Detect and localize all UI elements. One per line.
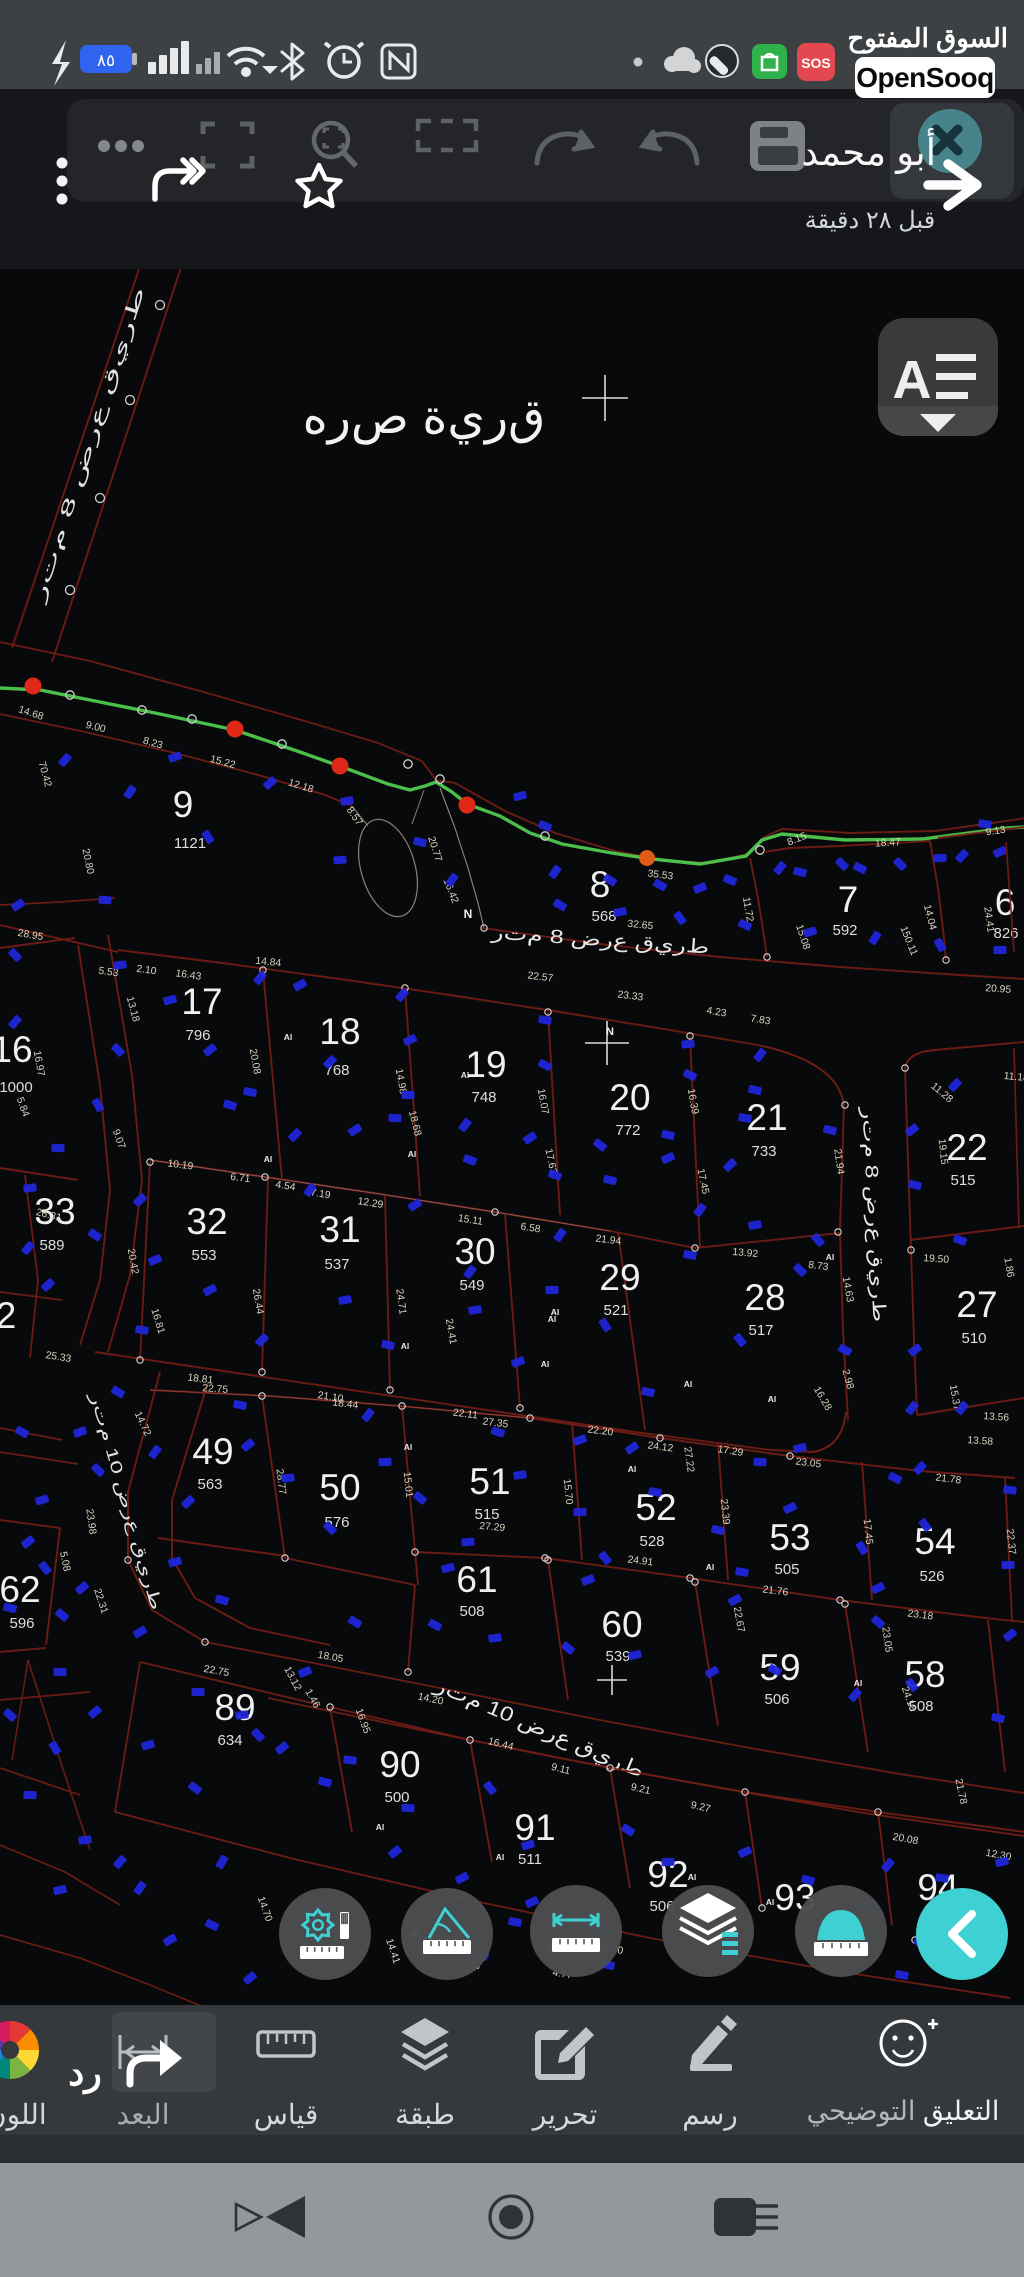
svg-text:28: 28 — [744, 1277, 785, 1318]
svg-text:Al: Al — [684, 1379, 693, 1389]
svg-text:SOS: SOS — [801, 55, 831, 71]
svg-text:510: 510 — [961, 1330, 986, 1347]
svg-text:Al: Al — [768, 1394, 777, 1404]
svg-text:2: 2 — [0, 1295, 16, 1336]
svg-text:Al: Al — [706, 1562, 715, 1572]
svg-text:8: 8 — [590, 864, 611, 905]
svg-text:27: 27 — [956, 1284, 997, 1325]
svg-text:Al: Al — [628, 1464, 637, 1474]
svg-text:طبقة: طبقة — [395, 2099, 455, 2130]
svg-text:20.95: 20.95 — [985, 983, 1012, 996]
svg-text:A: A — [893, 350, 932, 410]
svg-text:54: 54 — [914, 1521, 955, 1562]
svg-text:589: 589 — [39, 1237, 64, 1254]
svg-text:89: 89 — [214, 1687, 255, 1728]
svg-text:22.75: 22.75 — [202, 1383, 229, 1396]
svg-text:16: 16 — [0, 1029, 33, 1070]
svg-text:553: 553 — [191, 1247, 216, 1264]
svg-text:796: 796 — [185, 1027, 210, 1044]
svg-text:Al: Al — [826, 1252, 835, 1262]
svg-text:596: 596 — [9, 1615, 34, 1632]
svg-text:قبل ٢٨ دقيقة: قبل ٢٨ دقيقة — [805, 207, 935, 234]
svg-text:1121: 1121 — [174, 835, 206, 852]
svg-text:61: 61 — [456, 1559, 497, 1600]
svg-text:51: 51 — [469, 1461, 510, 1502]
svg-text:Al: Al — [376, 1822, 385, 1832]
svg-text:7: 7 — [838, 879, 859, 920]
svg-text:13.92: 13.92 — [732, 1247, 759, 1260]
svg-text:508: 508 — [459, 1603, 484, 1620]
svg-text:٨٥: ٨٥ — [97, 51, 115, 70]
svg-text:526: 526 — [919, 1568, 944, 1585]
svg-text:537: 537 — [324, 1256, 349, 1273]
svg-text:515: 515 — [474, 1506, 499, 1523]
svg-text:748: 748 — [471, 1089, 496, 1106]
svg-text:539: 539 — [605, 1648, 630, 1665]
svg-text:رسم: رسم — [682, 2099, 738, 2131]
svg-text:568: 568 — [591, 908, 616, 925]
svg-text:27.29: 27.29 — [479, 1521, 506, 1534]
svg-text:Al: Al — [548, 1314, 557, 1324]
svg-text:772: 772 — [615, 1122, 640, 1139]
svg-text:تحرير: تحرير — [531, 2099, 598, 2131]
svg-text:634: 634 — [217, 1732, 242, 1749]
svg-text:N: N — [464, 907, 473, 921]
svg-text:18.47: 18.47 — [875, 837, 902, 849]
svg-text:Al: Al — [404, 1442, 413, 1452]
svg-text:Al: Al — [264, 1154, 273, 1164]
svg-text:563: 563 — [197, 1476, 222, 1493]
svg-text:59: 59 — [759, 1647, 800, 1688]
svg-text:53: 53 — [769, 1517, 810, 1558]
svg-text:N: N — [606, 1026, 614, 1038]
svg-text:31: 31 — [319, 1209, 360, 1250]
svg-text:506: 506 — [764, 1691, 789, 1708]
svg-text:13.56: 13.56 — [983, 1411, 1010, 1424]
svg-text:البعد: البعد — [117, 2099, 170, 2130]
svg-text:Al: Al — [408, 1149, 417, 1159]
svg-text:826: 826 — [993, 925, 1018, 942]
svg-text:Al: Al — [496, 1852, 505, 1862]
svg-text:592: 592 — [832, 922, 857, 939]
svg-text:521: 521 — [603, 1302, 628, 1319]
svg-text:Al: Al — [284, 1032, 293, 1042]
svg-text:Al: Al — [461, 1070, 470, 1080]
svg-text:Al: Al — [541, 1359, 550, 1369]
svg-text:22: 22 — [946, 1127, 987, 1168]
svg-text:20: 20 — [609, 1077, 650, 1118]
svg-text:517: 517 — [748, 1322, 773, 1339]
svg-text:13.58: 13.58 — [967, 1435, 994, 1448]
svg-text:500: 500 — [384, 1789, 409, 1806]
svg-text:549: 549 — [459, 1277, 484, 1294]
svg-text:30: 30 — [454, 1231, 495, 1272]
svg-text:17: 17 — [181, 981, 222, 1022]
svg-text:رد: رد — [68, 2052, 101, 2095]
svg-text:91: 91 — [514, 1807, 555, 1848]
svg-text:قياس: قياس — [254, 2099, 319, 2131]
svg-text:60: 60 — [601, 1604, 642, 1645]
svg-text:أبو محمد: أبو محمد — [802, 128, 937, 175]
svg-text:50: 50 — [319, 1467, 360, 1508]
svg-text:1000: 1000 — [0, 1079, 33, 1096]
svg-text:9: 9 — [173, 784, 194, 825]
svg-text:11.18: 11.18 — [1003, 1071, 1024, 1084]
svg-text:19.50: 19.50 — [923, 1253, 950, 1266]
svg-text:29: 29 — [599, 1257, 640, 1298]
svg-text:528: 528 — [639, 1533, 664, 1550]
svg-text:511: 511 — [518, 1851, 542, 1868]
svg-text:32: 32 — [186, 1201, 227, 1242]
svg-text:18: 18 — [319, 1011, 360, 1052]
svg-text:ق‌ر‌ي‌ة‌ ص‌ر‌ه‌: ق‌ر‌ي‌ة‌ ص‌ر‌ه‌ — [303, 391, 546, 445]
svg-text:Al: Al — [401, 1341, 410, 1351]
svg-text:19: 19 — [465, 1044, 506, 1085]
svg-text:Al: Al — [854, 1678, 863, 1688]
svg-text:49: 49 — [192, 1431, 233, 1472]
svg-text:21: 21 — [746, 1097, 787, 1138]
svg-text:505: 505 — [774, 1561, 799, 1578]
svg-text:733: 733 — [751, 1143, 776, 1160]
svg-text:التعليق التوضيحي: التعليق التوضيحي — [807, 2096, 1000, 2127]
svg-text:اللون: اللون — [0, 2099, 47, 2131]
svg-text:515: 515 — [950, 1172, 975, 1189]
svg-text:90: 90 — [379, 1744, 420, 1785]
